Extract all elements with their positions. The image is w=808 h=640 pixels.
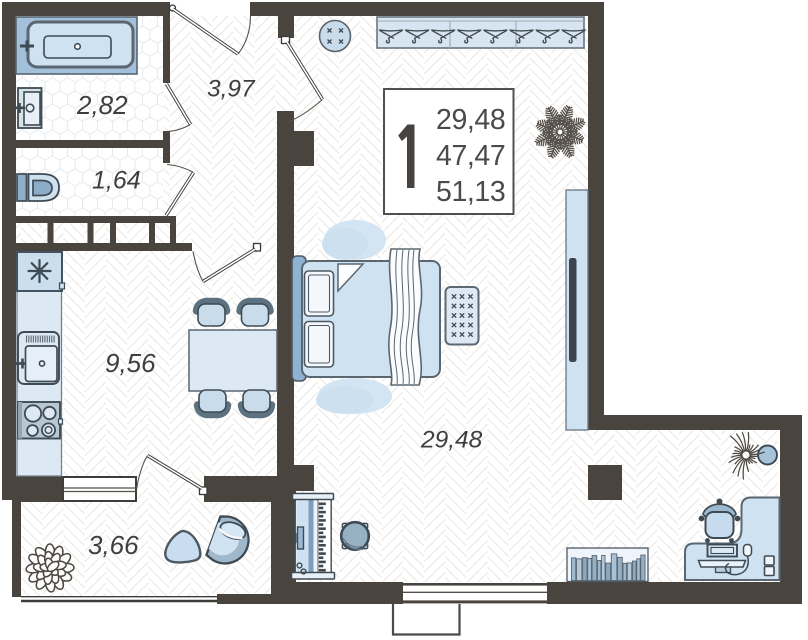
svg-text:3,97: 3,97 (207, 76, 256, 103)
svg-text:29,48: 29,48 (420, 427, 483, 454)
svg-text:9,56: 9,56 (105, 348, 156, 378)
svg-text:47,47: 47,47 (436, 140, 505, 172)
svg-text:2,82: 2,82 (76, 90, 128, 120)
svg-text:51,13: 51,13 (436, 176, 505, 208)
svg-text:1,64: 1,64 (92, 167, 141, 195)
svg-text:3,66: 3,66 (88, 530, 139, 560)
svg-text:29,48: 29,48 (436, 104, 505, 136)
